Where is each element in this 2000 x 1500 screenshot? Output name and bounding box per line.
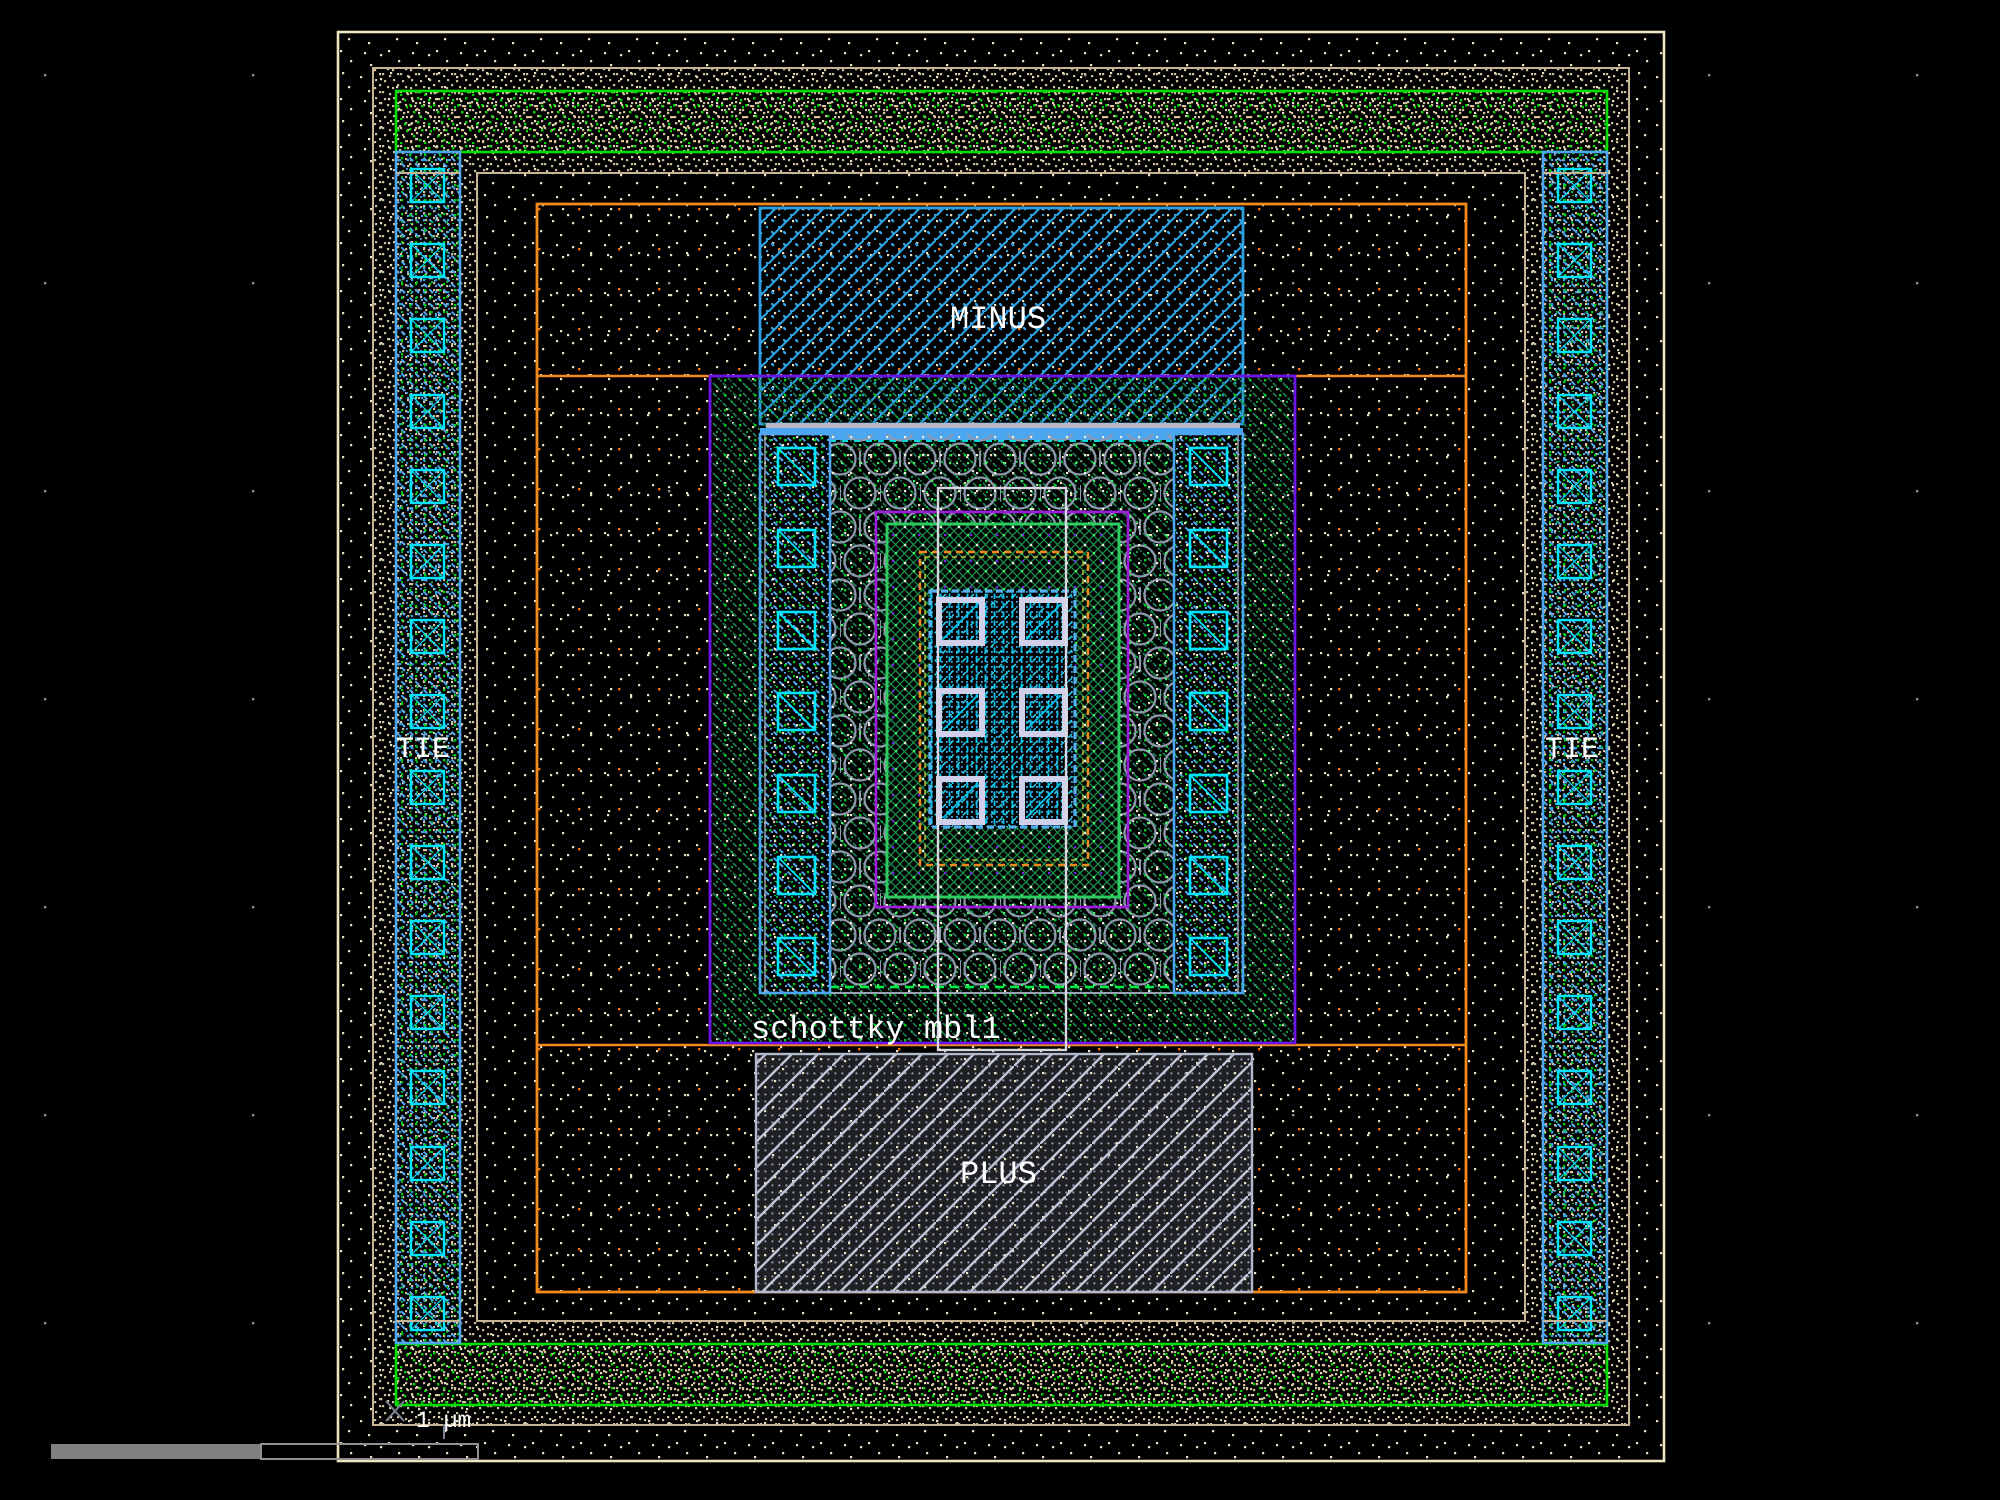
svg-text:1 µm: 1 µm	[416, 1408, 471, 1434]
svg-text:TIE: TIE	[396, 733, 450, 767]
svg-text:PLUS: PLUS	[960, 1156, 1037, 1193]
svg-text:TIE: TIE	[1545, 733, 1599, 767]
svg-text:schottky mbl1: schottky mbl1	[751, 1011, 1001, 1048]
svg-text:MINUS: MINUS	[950, 301, 1046, 338]
